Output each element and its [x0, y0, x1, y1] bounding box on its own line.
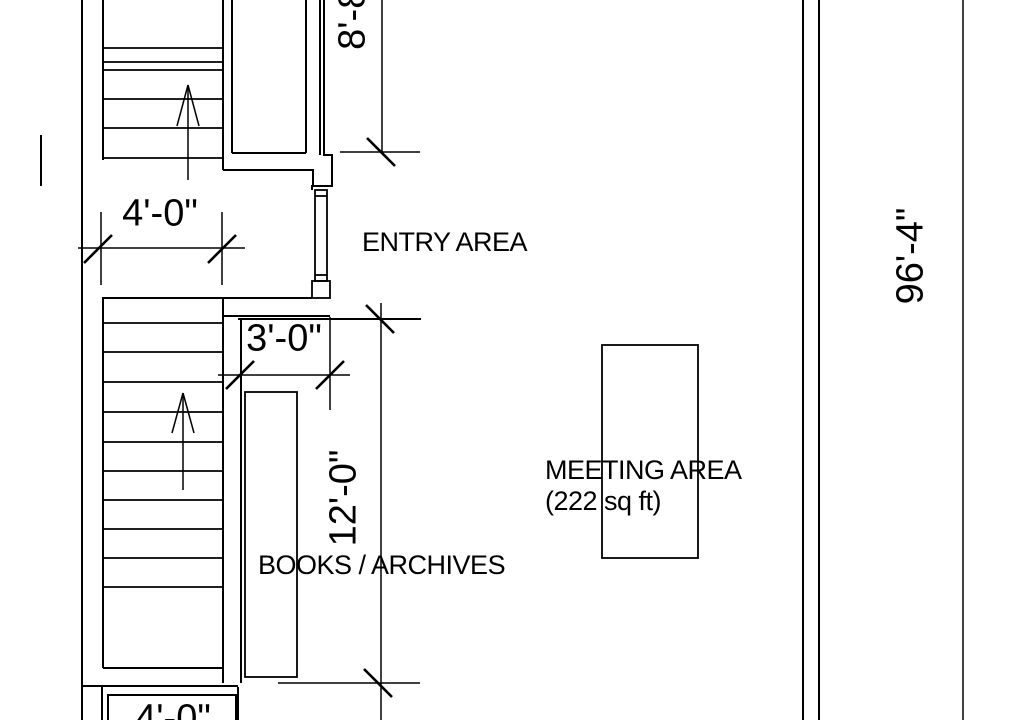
- books-archives-label: BOOKS / ARCHIVES: [258, 550, 505, 581]
- entry-area-label: ENTRY AREA: [362, 227, 527, 258]
- dimension-books-run: 12'-0": [323, 450, 366, 547]
- meeting-table: [602, 345, 698, 558]
- books-shelf: [245, 392, 297, 677]
- dimension-lines: [78, 0, 963, 720]
- dimension-lower-box: 4'-0": [135, 698, 211, 720]
- dimension-stair-width: 4'-0": [122, 193, 198, 236]
- floorplan-drawing: [0, 0, 1032, 720]
- dimension-door-clearance: 3'-0": [246, 318, 322, 361]
- meeting-area-name: MEETING AREA: [545, 455, 742, 486]
- meeting-area-label: MEETING AREA (222 sq ft): [545, 455, 742, 517]
- meeting-area-sqft: (222 sq ft): [545, 486, 742, 517]
- stair-treads: [103, 48, 223, 587]
- wall-lines: [41, 0, 819, 720]
- dimension-overall-height: 96'-4": [890, 208, 933, 305]
- floor-plan-page: { "drawing": { "background": "#ffffff", …: [0, 0, 1032, 720]
- dimension-upper-segment: 8'-8": [332, 0, 375, 50]
